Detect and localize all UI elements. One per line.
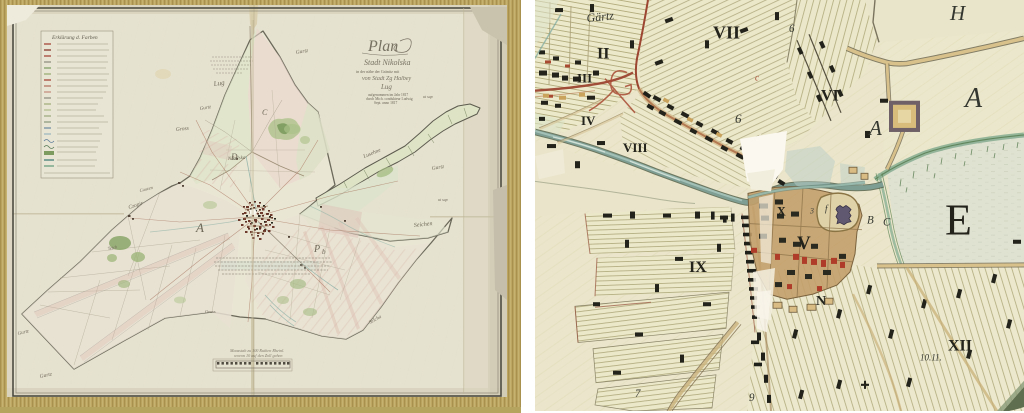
svg-text:VI: VI	[821, 88, 839, 105]
svg-text:D: D	[230, 152, 238, 162]
svg-text:B: B	[867, 215, 874, 227]
svg-text:A: A	[195, 220, 204, 235]
svg-text:Lug: Lug	[212, 78, 225, 88]
svg-text:in der nähe der Gränitz mit: in der nähe der Gränitz mit	[356, 69, 400, 74]
svg-text:XII: XII	[948, 338, 972, 355]
svg-text:VII: VII	[713, 22, 740, 42]
svg-text:Stadt Nikolska: Stadt Nikolska	[364, 58, 410, 67]
svg-text:III: III	[577, 71, 592, 86]
svg-text:Lug: Lug	[380, 83, 392, 91]
svg-text:3: 3	[809, 207, 814, 216]
svg-text:Erklärung d. Farben: Erklärung d. Farben	[51, 35, 98, 41]
svg-text:V: V	[797, 233, 811, 254]
svg-text:c: c	[755, 73, 759, 83]
svg-text:VIII: VIII	[623, 140, 648, 155]
svg-text:10.11.: 10.11.	[920, 353, 942, 363]
svg-text:X: X	[777, 205, 786, 219]
svg-text:ut sup: ut sup	[423, 94, 433, 99]
svg-text:A: A	[867, 116, 882, 140]
svg-text:IX: IX	[689, 259, 707, 276]
svg-text:9: 9	[749, 392, 755, 404]
svg-text:C: C	[262, 108, 268, 117]
svg-text:E: E	[945, 196, 972, 245]
svg-text:wovon 10 auf den Zoll gehen: wovon 10 auf den Zoll gehen	[234, 353, 283, 358]
svg-text:N: N	[816, 293, 826, 309]
svg-text:Sept. anno 1817: Sept. anno 1817	[374, 101, 397, 105]
svg-text:C: C	[883, 217, 891, 229]
svg-text:7: 7	[635, 388, 641, 400]
svg-text:von Stadt Zg Halbey: von Stadt Zg Halbey	[362, 76, 411, 82]
svg-text:P: P	[313, 244, 320, 255]
svg-text:Gärtz: Gärtz	[586, 8, 615, 25]
svg-text:Plan: Plan	[367, 38, 398, 55]
svg-text:ut sup: ut sup	[438, 197, 448, 202]
svg-text:II: II	[597, 45, 609, 62]
svg-text:H: H	[949, 1, 967, 25]
svg-text:b: b	[322, 248, 326, 256]
svg-text:A: A	[963, 83, 983, 114]
svg-text:6: 6	[789, 23, 795, 35]
svg-text:6: 6	[735, 111, 742, 126]
svg-text:IV: IV	[581, 113, 596, 128]
svg-text:Gross: Gross	[205, 309, 216, 314]
